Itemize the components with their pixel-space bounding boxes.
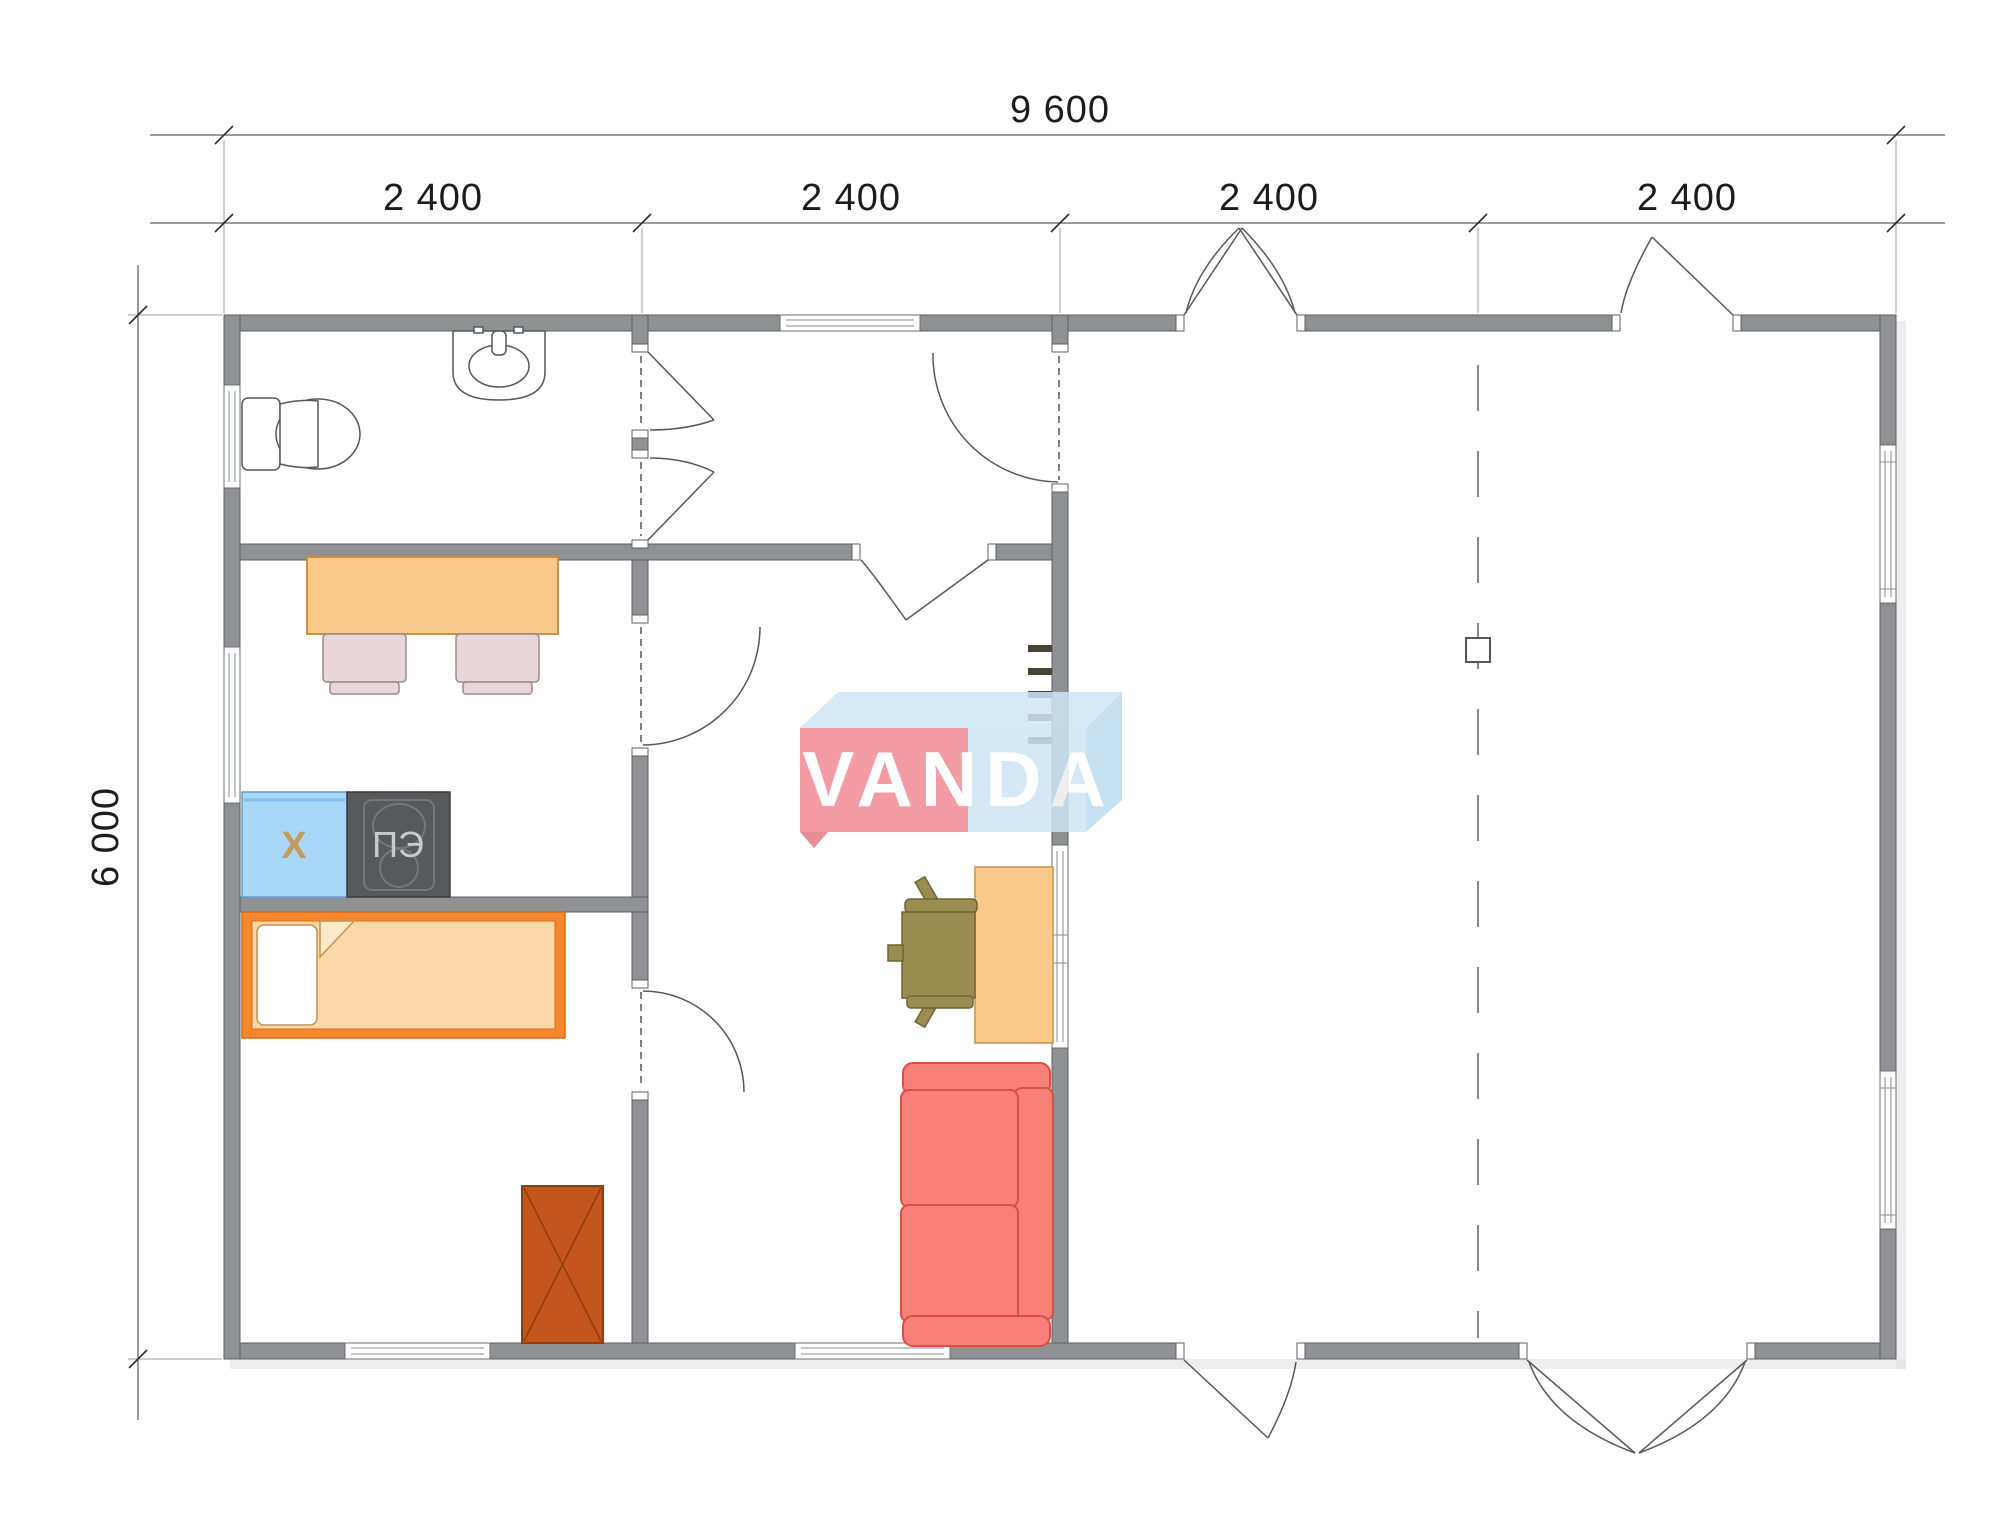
dining-chair-2	[456, 634, 539, 694]
toilet	[242, 398, 360, 470]
door-terrace-bottom-single	[1184, 1360, 1296, 1438]
logo-text: VANDA	[802, 735, 1114, 823]
door-bedroom	[641, 991, 744, 1092]
floor-plan-drawing: 9 600 2 400 2 400 2 400 2 400 6 000	[0, 0, 2000, 1524]
dim-seg-3: 2 400	[1219, 177, 1319, 219]
floor-plan-page: 9 600 2 400 2 400 2 400 2 400 6 000	[0, 0, 2000, 1524]
wall-shadow-right	[1896, 321, 1906, 1369]
door-hall-upper	[641, 458, 714, 540]
walls	[224, 315, 1896, 1359]
window-top-hall	[780, 315, 920, 331]
stove-label: ПЭ	[372, 824, 424, 865]
dining-chair-1	[323, 634, 406, 694]
logo-top-face	[800, 692, 1122, 728]
dim-seg-2: 2 400	[801, 177, 901, 219]
door-living	[861, 560, 988, 620]
dim-total-width: 9 600	[1010, 89, 1110, 131]
dim-seg-4: 2 400	[1637, 177, 1737, 219]
kitchen-table	[307, 557, 558, 634]
pillow	[257, 925, 317, 1025]
window-left-kitchen	[224, 647, 240, 803]
window-right-upper	[1880, 445, 1896, 603]
wall-caps	[632, 315, 1755, 1359]
window-left-bathroom	[224, 385, 240, 488]
fridge: X	[242, 792, 347, 897]
vanda-watermark: VANDA	[800, 692, 1122, 848]
terrace-post	[1466, 638, 1490, 662]
sink	[453, 327, 545, 400]
window-interior-partition	[1052, 845, 1068, 1048]
wardrobe-cabinet	[522, 1186, 603, 1343]
door-terrace-top-single	[1621, 237, 1733, 315]
office-chair	[888, 877, 977, 1028]
stove: ПЭ	[347, 792, 450, 897]
door-kitchen	[641, 627, 760, 745]
desk	[975, 867, 1053, 1043]
doors	[641, 228, 1747, 1453]
sofa	[901, 1063, 1053, 1346]
window-bottom-bedroom	[345, 1343, 490, 1359]
door-terrace-hall	[933, 353, 1059, 482]
window-right-lower	[1880, 1071, 1896, 1229]
bed	[242, 912, 565, 1038]
wall-shadow-bottom	[230, 1359, 1906, 1369]
door-bathroom	[641, 352, 714, 430]
door-terrace-bottom-double	[1527, 1360, 1747, 1453]
fridge-label: X	[281, 825, 307, 867]
door-terrace-top-double	[1184, 228, 1297, 315]
dim-seg-1: 2 400	[383, 177, 483, 219]
dim-height: 6 000	[85, 787, 127, 887]
logo-pink-tab	[800, 832, 828, 848]
